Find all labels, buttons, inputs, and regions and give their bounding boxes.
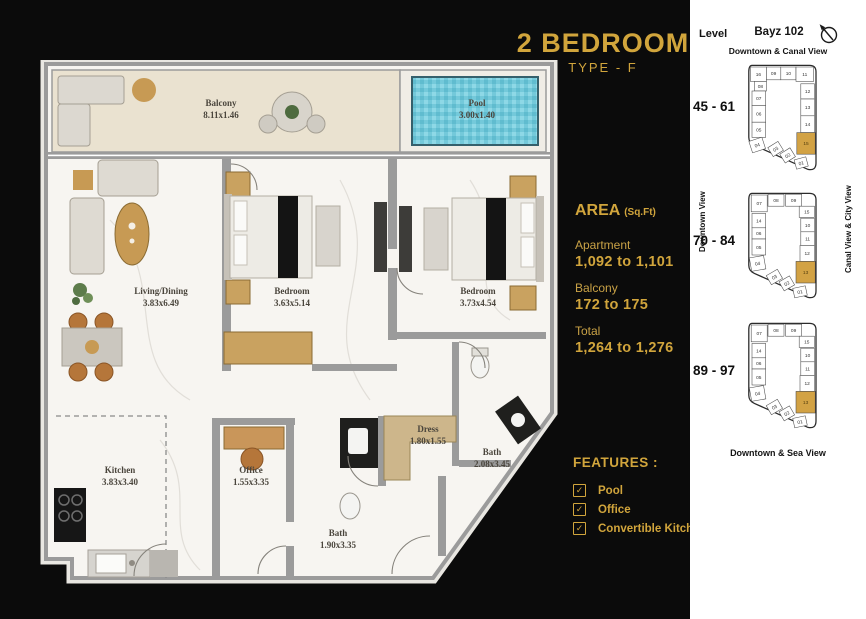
svg-text:05: 05: [756, 245, 762, 251]
area-item-total: Total 1,264 to 1,276: [575, 324, 695, 356]
svg-text:11: 11: [802, 72, 807, 78]
svg-text:07: 07: [756, 96, 762, 102]
checkbox-checked-icon: ✓: [573, 503, 586, 516]
view-label-top: Downtown & Canal View: [698, 46, 858, 56]
view-label-left: Downtown View: [698, 152, 707, 252]
svg-text:09: 09: [791, 198, 797, 204]
checkbox-checked-icon: ✓: [573, 522, 586, 535]
area-item-balcony: Balcony 172 to 175: [575, 281, 695, 313]
floorplan: Balcony8.11x1.46 Pool3.00x1.40 Living/Di…: [40, 60, 560, 605]
wardrobe-icon: [374, 202, 387, 272]
svg-text:14: 14: [756, 218, 762, 224]
feature-row-pool: ✓ Pool: [573, 484, 703, 497]
svg-text:11: 11: [805, 236, 810, 242]
keyplan-89-97: 070809151011121314060504030201: [740, 318, 824, 436]
feature-row-convertible-kitchen: ✓ Convertible Kitchen: [573, 522, 703, 535]
svg-text:10: 10: [805, 223, 811, 229]
svg-text:16: 16: [756, 72, 762, 78]
svg-text:09: 09: [791, 328, 797, 334]
area-heading: AREA (Sq.Ft): [575, 202, 695, 220]
floorplan-graphic: [40, 60, 560, 605]
svg-text:08: 08: [773, 328, 779, 334]
svg-text:05: 05: [756, 128, 762, 134]
wardrobe-icon-2: [399, 206, 412, 272]
svg-text:12: 12: [805, 251, 811, 257]
svg-text:14: 14: [756, 348, 762, 354]
svg-text:07: 07: [757, 201, 763, 207]
svg-text:15: 15: [804, 210, 810, 216]
svg-text:15: 15: [803, 141, 809, 147]
svg-text:13: 13: [805, 105, 811, 111]
svg-text:08: 08: [773, 198, 779, 204]
view-label-right: Canal View & City View: [844, 128, 853, 273]
compass-icon: [816, 21, 840, 47]
svg-text:14: 14: [805, 122, 811, 128]
keyplan-70-84: 070809151011121314060504030201: [740, 188, 824, 306]
svg-text:12: 12: [805, 89, 811, 95]
svg-text:05: 05: [756, 375, 762, 381]
svg-text:10: 10: [805, 353, 811, 359]
svg-text:07: 07: [757, 331, 763, 337]
svg-text:12: 12: [805, 381, 811, 387]
features-block: FEATURES : ✓ Pool ✓ Office ✓ Convertible…: [573, 455, 703, 541]
features-heading: FEATURES :: [573, 455, 703, 470]
checkbox-checked-icon: ✓: [573, 484, 586, 497]
svg-text:06: 06: [756, 361, 762, 367]
brochure-page: Balcony8.11x1.46 Pool3.00x1.40 Living/Di…: [0, 0, 866, 619]
coffee-table-icon: [115, 203, 149, 265]
pool-water: [412, 77, 538, 145]
closet-icon: [224, 332, 312, 364]
svg-text:10: 10: [786, 71, 792, 77]
area-item-apartment: Apartment 1,092 to 1,101: [575, 238, 695, 270]
page-title: 2 BEDROOM: [512, 28, 694, 59]
svg-text:06: 06: [756, 231, 762, 237]
level-range-1: 45 - 61: [690, 99, 738, 114]
keyplan-45-61: 16091011080706050412131415030201: [740, 60, 824, 178]
page-subtitle: TYPE - F: [512, 60, 694, 75]
title-block: 2 BEDROOM TYPE - F: [512, 28, 694, 75]
svg-text:13: 13: [803, 270, 809, 276]
level-range-3: 89 - 97: [690, 363, 738, 378]
feature-row-office: ✓ Office: [573, 503, 703, 516]
balcony-rug-icon: [132, 78, 156, 102]
svg-text:15: 15: [804, 340, 810, 346]
svg-text:09: 09: [771, 71, 777, 77]
svg-text:06: 06: [756, 112, 762, 118]
area-block: AREA (Sq.Ft) Apartment 1,092 to 1,101 Ba…: [575, 202, 695, 367]
svg-text:13: 13: [803, 400, 809, 406]
svg-text:08: 08: [758, 84, 764, 90]
sidebar: Level Bayz 102 Downtown & Canal View 160…: [690, 0, 866, 619]
view-label-bottom: Downtown & Sea View: [698, 448, 858, 458]
svg-text:11: 11: [805, 366, 810, 372]
area-unit: (Sq.Ft): [624, 207, 656, 218]
